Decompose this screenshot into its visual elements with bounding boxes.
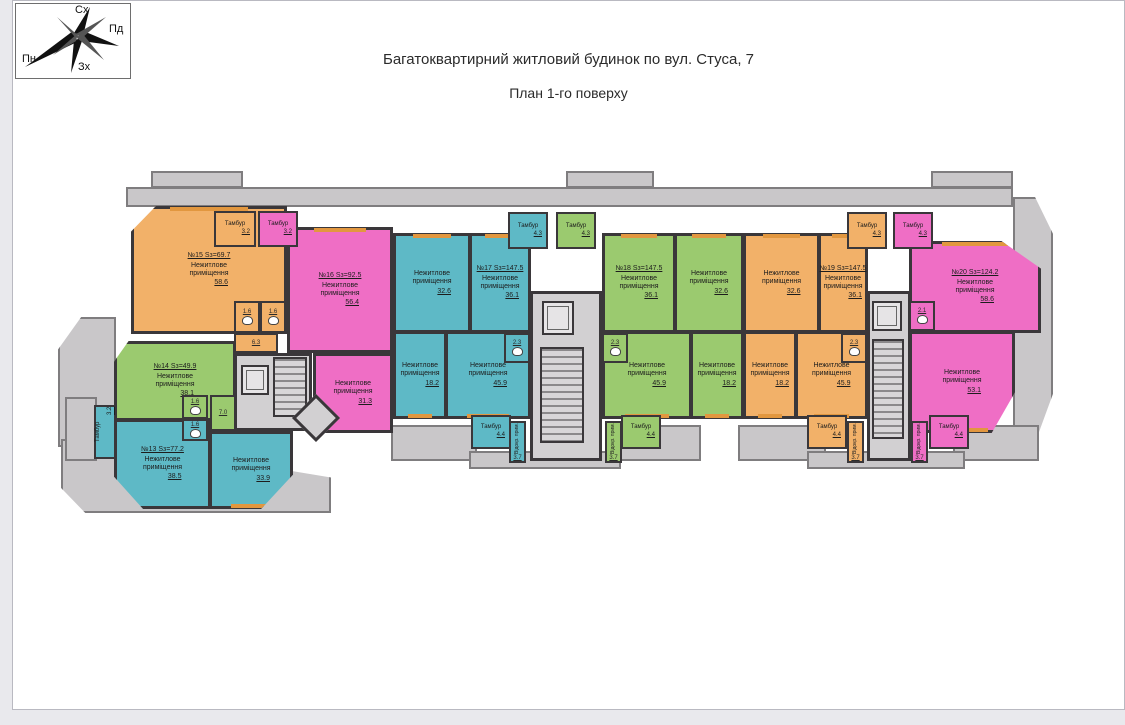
entrance-porch <box>65 397 97 461</box>
room-unit17-3: Нежитлове приміщення18.2 <box>393 331 447 419</box>
wc-room: 2.3 <box>841 333 867 363</box>
tambour: Тамбур4.4 <box>929 415 969 449</box>
room-unit18-4: Нежитлове приміщення18.2 <box>690 331 744 419</box>
stairs-icon <box>872 339 904 439</box>
room-unit17-1: Нежитлове приміщення32.6 <box>393 233 471 333</box>
terrace-parapet <box>931 171 1013 188</box>
toilet-icon <box>610 347 621 356</box>
room-label: №15 Sз=69.7 Нежитлове приміщення 58.6 <box>180 252 238 288</box>
toilet-icon <box>242 316 253 325</box>
tambour: Тамбур4.4 <box>471 415 511 449</box>
tambour: Тамбур4.4 <box>807 415 847 449</box>
wc-room: 1.6 <box>182 395 208 419</box>
tambour: Тамбур3.2 <box>258 211 298 247</box>
room-label: Нежитлове приміщення 33.9 <box>222 457 280 483</box>
room-unit19-1: Нежитлове приміщення32.6 <box>743 233 820 333</box>
room-label: Нежитлове приміщення 31.3 <box>324 380 382 406</box>
separated-room: Відокр. прим.3.7 <box>605 421 622 463</box>
separated-room: Відокр. прим.3.7 <box>847 421 864 463</box>
room-label: №14 Sз=49.9 Нежитлове приміщення 38.1 <box>146 363 204 399</box>
room-unit18-1: №18 Sз=147.5Нежитлове приміщення36.1 <box>602 233 676 333</box>
hall: 7.0 <box>210 395 236 431</box>
tambour: Тамбур4.3 <box>508 212 548 249</box>
separated-room: Відокр. прим.3.7 <box>509 421 526 463</box>
room-label: №16 Sз=92.5 Нежитлове приміщення 56.4 <box>311 272 369 308</box>
wc-room: 2.3 <box>504 333 530 363</box>
wc-room: 2.1 <box>909 301 935 331</box>
elevator <box>241 365 269 395</box>
wc-room: 2.3 <box>602 333 628 363</box>
corridor: 6.3 <box>234 333 278 353</box>
wc-room: 1.6 <box>182 419 208 441</box>
toilet-icon <box>190 406 201 415</box>
tambour: Тамбур4.3 <box>847 212 887 249</box>
terrace-parapet <box>151 171 243 188</box>
wc-room: 1.6 <box>234 301 260 333</box>
wc-room: 1.6 <box>260 301 286 333</box>
tambour: Тамбур4.3 <box>893 212 933 249</box>
terrace-bottom <box>391 425 477 461</box>
toilet-icon <box>190 429 201 438</box>
toilet-icon <box>512 347 523 356</box>
toilet-icon <box>268 316 279 325</box>
drawing-sheet: Сх Пд Зх Пн Багатоквартирний житловий бу… <box>12 0 1125 710</box>
tambour: Тамбур4.4 <box>621 415 661 449</box>
elevator <box>872 301 902 331</box>
page: { "page": { "title1": "Багатоквартирний … <box>0 0 1125 724</box>
toilet-icon <box>849 347 860 356</box>
separated-room: Відокр. прим.3.7 <box>911 421 928 463</box>
tambour: Тамбур3.2 <box>214 211 256 247</box>
room-unit19-3: Нежитлове приміщення18.2 <box>743 331 797 419</box>
tambour: Тамбур3.2 <box>94 405 116 459</box>
stairs-icon <box>540 347 584 443</box>
terrace-parapet <box>566 171 654 188</box>
room-unit18-2: Нежитлове приміщення32.6 <box>674 233 744 333</box>
tambour: Тамбур4.3 <box>556 212 596 249</box>
floor-plan: №15 Sз=69.7 Нежитлове приміщення 58.6 №1… <box>1 1 1125 725</box>
terrace-top <box>126 187 1013 207</box>
room-unit16-main: №16 Sз=92.5 Нежитлове приміщення 56.4 <box>287 227 393 353</box>
elevator <box>542 301 574 335</box>
toilet-icon <box>917 315 928 324</box>
room-label: №13 Sз=77.2 Нежитлове приміщення 38.5 <box>134 446 192 482</box>
